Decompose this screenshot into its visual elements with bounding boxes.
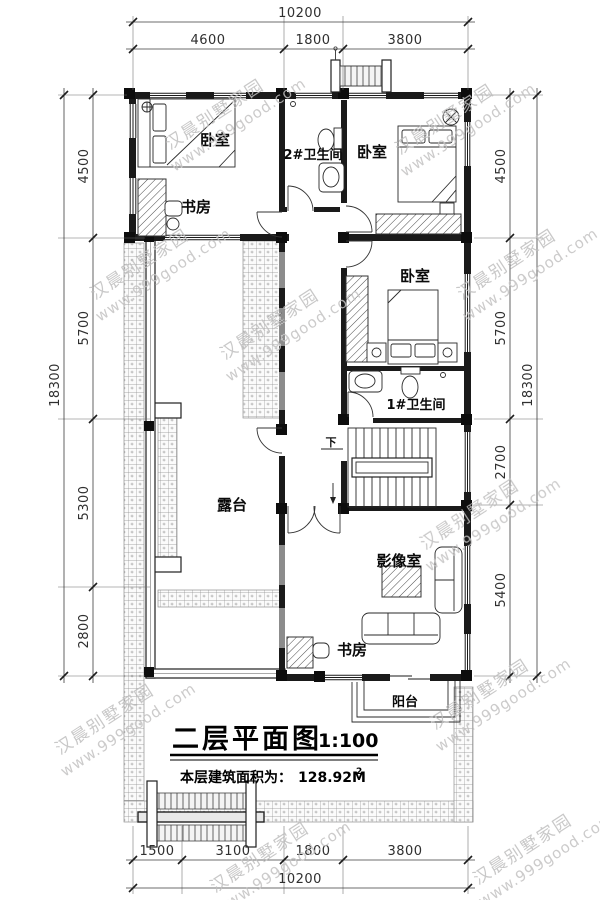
dim-left-seg-3: 5300 <box>77 485 92 520</box>
label-media-room: 影像室 <box>376 552 421 570</box>
dim-top-seg-2: 1800 <box>295 33 330 48</box>
title-block: 二层平面图 1:100 本层建筑面积为： 128.92M 2 <box>170 724 378 786</box>
label-stair-down: 下 <box>326 436 337 449</box>
dim-bottom-seg-4: 3800 <box>387 844 422 859</box>
dim-top-seg-3: 3800 <box>387 33 422 48</box>
dim-left-seg-4: 2800 <box>77 613 92 648</box>
chair-s <box>313 643 329 658</box>
label-bathroom2: 2#卫生间 <box>284 147 343 163</box>
label-bathroom1: 1#卫生间 <box>387 397 446 413</box>
dim-right-seg-4: 5400 <box>494 572 509 607</box>
dim-top-seg-1: 4600 <box>190 33 225 48</box>
label-terrace: 露台 <box>217 496 247 514</box>
sofa-main <box>362 613 440 644</box>
dim-bottom-seg-1: 1500 <box>139 844 174 859</box>
dim-left-seg-1: 4500 <box>77 148 92 183</box>
wardrobe-ne <box>376 214 461 234</box>
floor-plan-page: 卧室 书房 2#卫生间 卧室 卧室 1#卫生间 露台 影像室 书房 阳台 下 1… <box>0 0 600 900</box>
wardrobe-nw <box>138 179 166 236</box>
nightstand-ne <box>440 203 454 214</box>
dim-right-total: 18300 <box>521 363 536 407</box>
dim-right-seg-2: 5700 <box>494 310 509 345</box>
label-study-nw: 书房 <box>181 198 211 216</box>
dim-right-seg-3: 2700 <box>494 444 509 479</box>
dim-left-total: 18300 <box>48 363 63 407</box>
bookshelf-s <box>287 637 313 668</box>
dim-right-seg-1: 4500 <box>494 148 509 183</box>
label-bedroom-ne: 卧室 <box>357 143 387 161</box>
label-balcony: 阳台 <box>392 694 418 710</box>
bed-e <box>388 290 438 364</box>
label-study-s: 书房 <box>337 641 367 659</box>
floor-plan-canvas: 卧室 书房 2#卫生间 卧室 卧室 1#卫生间 露台 影像室 书房 阳台 下 1… <box>0 0 600 900</box>
plan-title: 二层平面图 <box>172 724 322 755</box>
dim-top-total: 10200 <box>278 6 322 21</box>
label-bedroom-e: 卧室 <box>400 267 430 285</box>
dim-left-seg-2: 5700 <box>77 310 92 345</box>
area-superscript: 2 <box>356 767 362 777</box>
sink-bath2 <box>319 163 344 192</box>
media-table <box>382 566 421 597</box>
area-label: 本层建筑面积为： <box>180 769 292 786</box>
plan-scale: 1:100 <box>318 730 378 752</box>
sink-bath1 <box>349 371 382 392</box>
